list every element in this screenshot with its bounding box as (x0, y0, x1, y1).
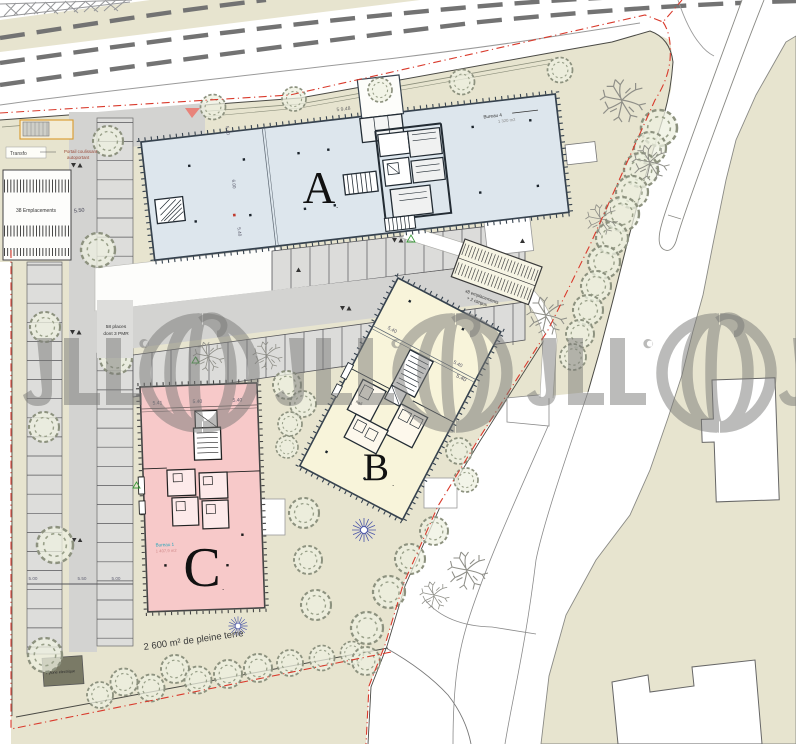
svg-text:Portail coulissant: Portail coulissant (64, 149, 98, 154)
svg-text:.: . (222, 583, 224, 592)
svg-text:autoportant: autoportant (67, 155, 90, 160)
svg-text:5.50: 5.50 (78, 576, 87, 581)
svg-text:B: B (363, 446, 389, 489)
svg-text:5.00: 5.00 (29, 576, 38, 581)
svg-text:5.00: 5.00 (112, 576, 121, 581)
svg-text:.: . (392, 479, 394, 488)
svg-text:58 places: 58 places (106, 324, 127, 330)
svg-text:1 407,9 m2: 1 407,9 m2 (156, 548, 178, 554)
svg-text:Transfo: Transfo (10, 151, 27, 157)
svg-text:.: . (336, 201, 338, 210)
svg-text:38 Emplacements: 38 Emplacements (16, 208, 57, 214)
svg-text:A: A (303, 163, 336, 213)
svg-text:Bureau 1: Bureau 1 (155, 542, 174, 548)
svg-text:5.50: 5.50 (74, 208, 85, 215)
svg-text:C: C (183, 537, 220, 599)
svg-text:dont 3 PMR: dont 3 PMR (103, 331, 129, 337)
